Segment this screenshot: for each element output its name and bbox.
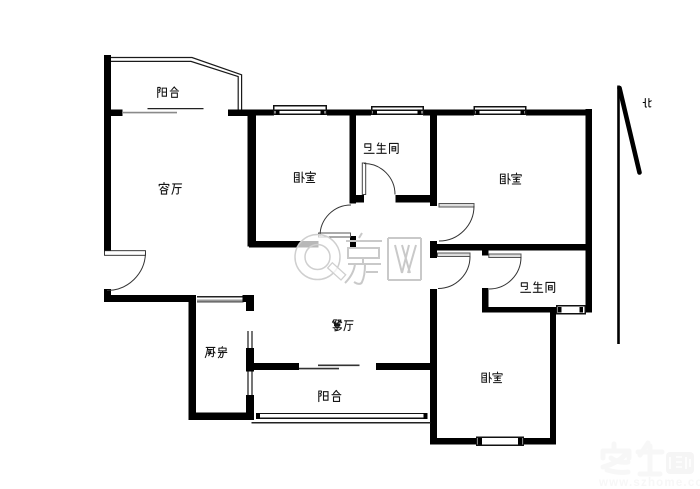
svg-text:www.szhome.com: www.szhome.com <box>598 477 700 489</box>
